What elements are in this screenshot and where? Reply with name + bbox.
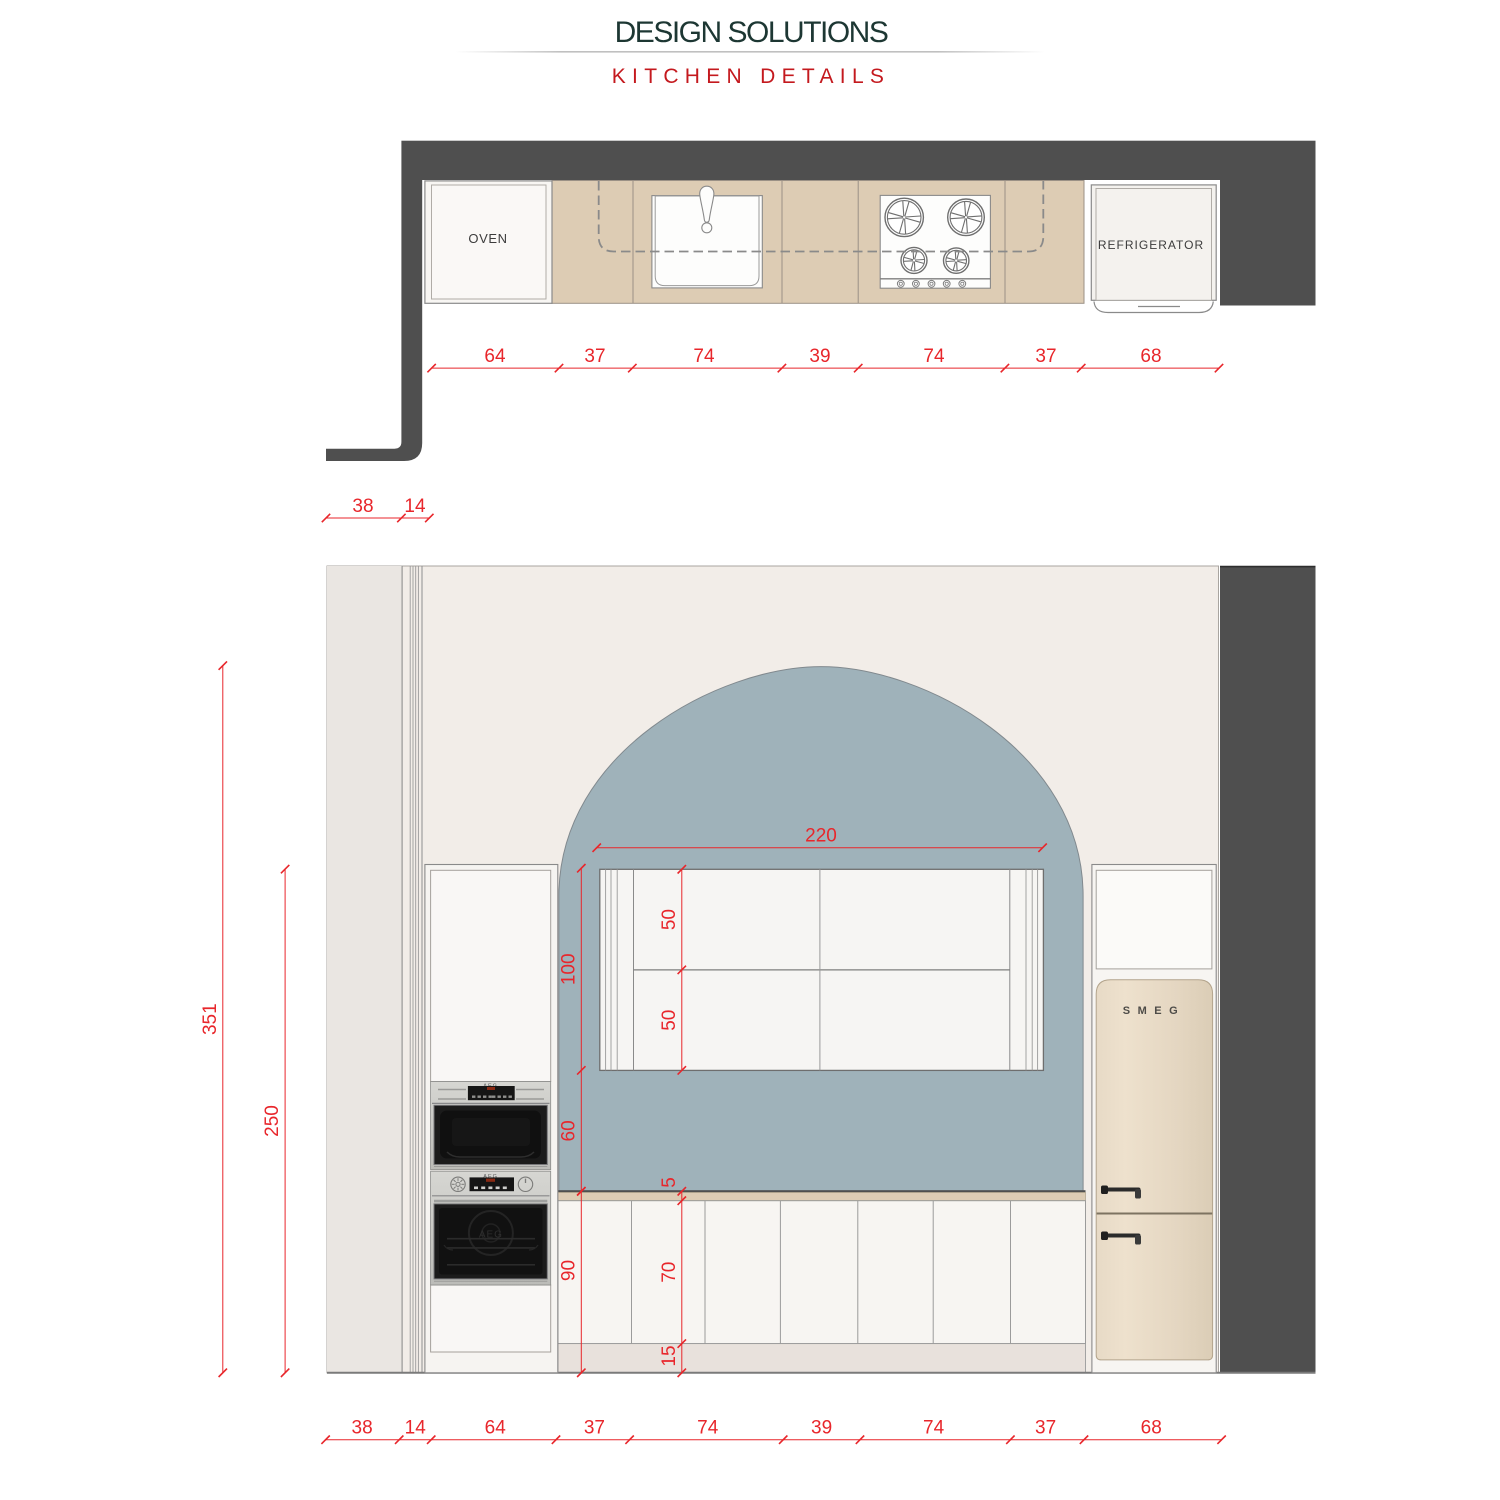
svg-text:74: 74 [923, 1418, 945, 1439]
svg-text:14: 14 [405, 1418, 427, 1439]
svg-text:38: 38 [352, 496, 373, 517]
svg-text:38: 38 [352, 1418, 373, 1439]
svg-text:68: 68 [1141, 1418, 1162, 1439]
svg-text:37: 37 [1035, 1418, 1056, 1439]
svg-text:351: 351 [200, 1003, 221, 1035]
svg-text:64: 64 [485, 1418, 507, 1439]
svg-text:37: 37 [584, 1418, 605, 1439]
svg-text:74: 74 [697, 1418, 719, 1439]
svg-text:KITCHEN DETAILS: KITCHEN DETAILS [612, 65, 890, 88]
svg-text:60: 60 [558, 1120, 579, 1141]
svg-text:90: 90 [558, 1260, 579, 1281]
svg-text:37: 37 [584, 346, 605, 367]
svg-text:74: 74 [923, 346, 945, 367]
svg-text:SMEG: SMEG [1123, 1005, 1185, 1017]
svg-text:64: 64 [484, 346, 506, 367]
svg-text:DESIGN SOLUTIONS: DESIGN SOLUTIONS [615, 16, 888, 49]
svg-text:68: 68 [1140, 346, 1161, 367]
svg-text:220: 220 [805, 826, 837, 847]
svg-text:REFRIGERATOR: REFRIGERATOR [1098, 238, 1204, 252]
svg-text:14: 14 [404, 496, 426, 517]
svg-text:100: 100 [558, 953, 579, 985]
svg-text:39: 39 [811, 1418, 832, 1439]
svg-text:37: 37 [1035, 346, 1056, 367]
svg-text:50: 50 [659, 909, 680, 930]
svg-text:15: 15 [659, 1345, 680, 1366]
svg-text:74: 74 [693, 346, 715, 367]
svg-text:OVEN: OVEN [468, 231, 507, 246]
svg-text:39: 39 [809, 346, 830, 367]
svg-text:AEG: AEG [479, 1230, 503, 1241]
svg-text:70: 70 [659, 1262, 680, 1283]
svg-text:5: 5 [659, 1177, 680, 1188]
svg-text:250: 250 [262, 1105, 283, 1137]
svg-text:50: 50 [659, 1010, 680, 1031]
